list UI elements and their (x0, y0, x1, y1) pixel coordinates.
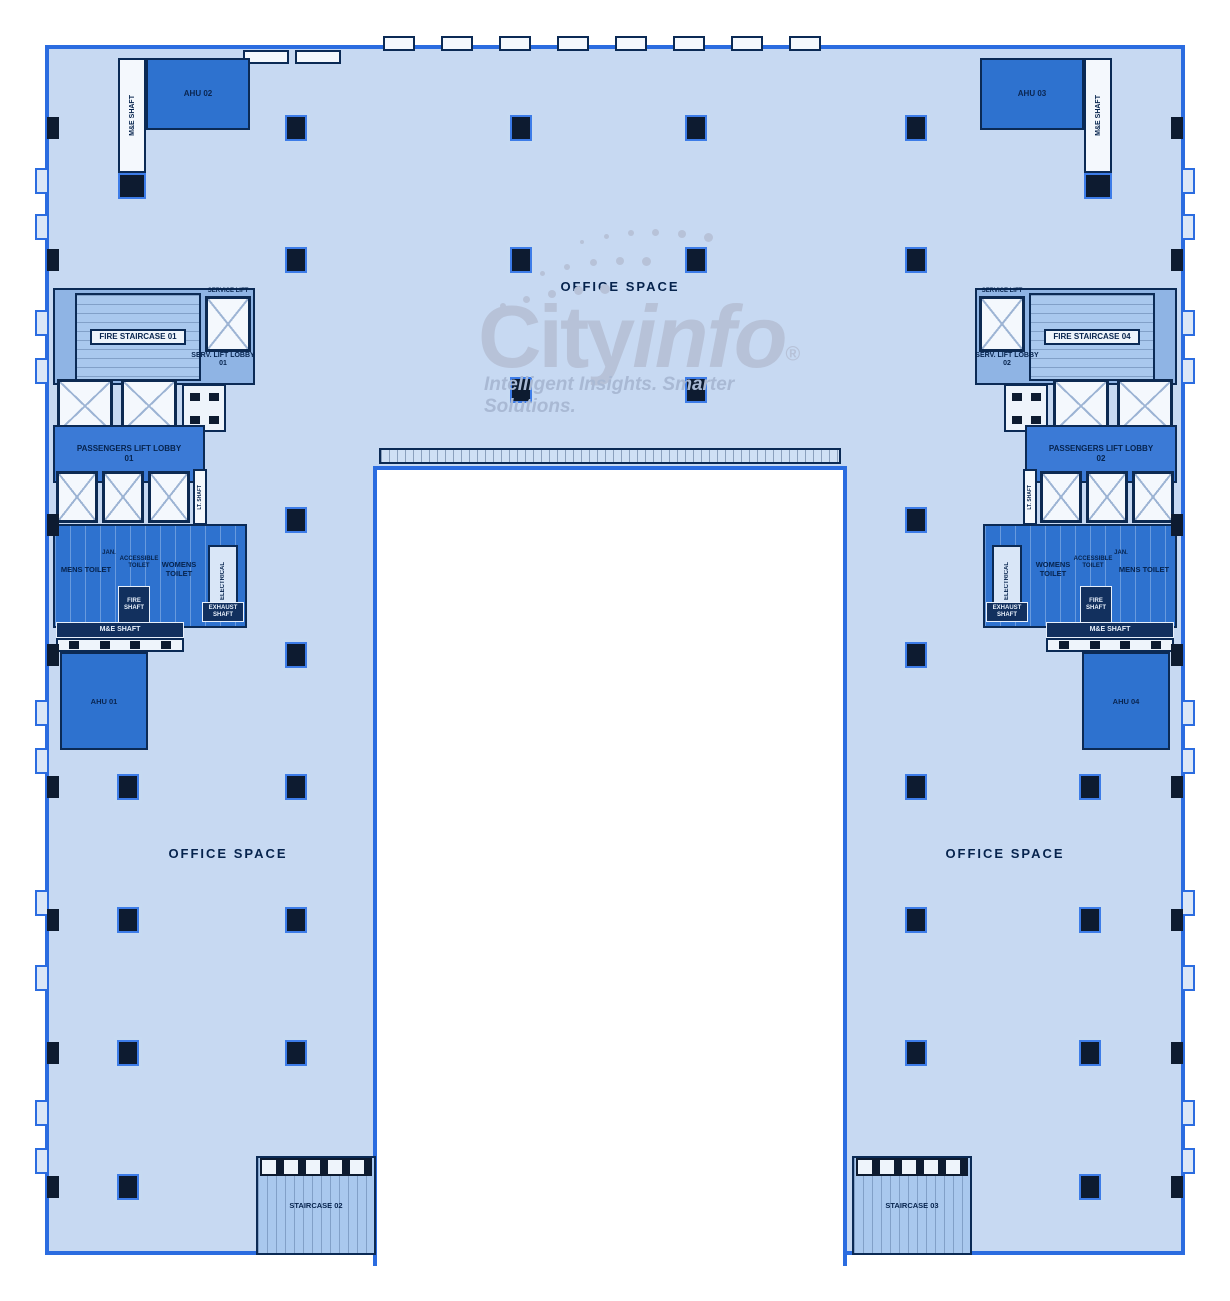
structural-column (1079, 1040, 1101, 1066)
shaft-box (118, 173, 146, 199)
wall-pilaster (47, 249, 59, 271)
staircase-02-landing (260, 1158, 372, 1176)
electrical-label: ELECTRICAL (220, 562, 226, 600)
passenger-lift-cell (102, 471, 144, 523)
structural-column (1079, 907, 1101, 933)
facade-notch (35, 214, 47, 240)
exhaust-shaft-right: EXHAUST SHAFT (986, 602, 1028, 622)
facade-notch (35, 965, 47, 991)
fire-shaft-label: FIRE SHAFT (121, 598, 147, 612)
structural-column (1079, 774, 1101, 800)
service-lift-right (979, 296, 1025, 352)
parapet-notch (789, 36, 821, 51)
electrical-label: ELECTRICAL (1004, 562, 1010, 600)
exhaust-shaft-label: EXHAUST SHAFT (205, 605, 241, 619)
me-shaft-label: M&E SHAFT (129, 95, 136, 136)
ahu-02-room: AHU 02 (146, 58, 250, 130)
structural-column (905, 115, 927, 141)
lt-shaft-label: LT. SHAFT (197, 485, 203, 510)
watermark-dot (580, 240, 584, 244)
wall-pilaster (1171, 644, 1183, 666)
wall-pilaster (1171, 249, 1183, 271)
facade-notch (35, 700, 47, 726)
structural-column (285, 247, 307, 273)
passengers-lift-lobby-02-label: PASSENGERS LIFT LOBBY 02 (1046, 444, 1156, 463)
watermark-dot (704, 233, 713, 242)
structural-column (117, 907, 139, 933)
facade-notch (1183, 214, 1195, 240)
structural-column (117, 774, 139, 800)
wall-pilaster (47, 644, 59, 666)
ahu-01-room: AHU 01 (60, 652, 148, 750)
me-shaft-top-right: M&E SHAFT (1084, 58, 1112, 173)
wall-pilaster (47, 1042, 59, 1064)
fire-staircase-01-label: FIRE STAIRCASE 01 (90, 329, 186, 344)
wall-pilaster (47, 1176, 59, 1198)
parapet-notch (499, 36, 531, 51)
me-shaft-left: M&E SHAFT (56, 622, 184, 638)
structural-column (285, 774, 307, 800)
janitor-right-label: JAN. (1108, 550, 1134, 557)
facade-notch (1183, 310, 1195, 336)
mens-toilet-left-label: MENS TOILET (60, 565, 112, 574)
structural-column (1079, 1174, 1101, 1200)
watermark-dot (548, 290, 556, 298)
parapet-notch (731, 36, 763, 51)
watermark-dot (616, 257, 624, 265)
lt-shaft-left: LT. SHAFT (193, 469, 207, 525)
ahu-01-label: AHU 01 (91, 697, 118, 706)
structural-column (510, 115, 532, 141)
exhaust-shaft-label: EXHAUST SHAFT (989, 605, 1025, 619)
service-lift-right-label: SERVICE LIFT (974, 288, 1030, 295)
wall-pilaster (1171, 909, 1183, 931)
facade-notch (35, 748, 47, 774)
wall-pilaster (47, 514, 59, 536)
structural-column (285, 907, 307, 933)
fire-shaft-left: FIRE SHAFT (118, 586, 150, 624)
facade-vent-box (295, 50, 341, 64)
me-shaft-right: M&E SHAFT (1046, 622, 1174, 638)
facade-notch (1183, 168, 1195, 194)
wall-pilaster (47, 776, 59, 798)
structural-column (905, 1040, 927, 1066)
facade-notch (1183, 1148, 1195, 1174)
fire-shaft-label: FIRE SHAFT (1083, 598, 1109, 612)
wall-pilaster (47, 909, 59, 931)
office-space-left-label: OFFICE SPACE (128, 846, 328, 862)
facade-notch (35, 1100, 47, 1126)
mens-toilet-right-label: MENS TOILET (1118, 565, 1170, 574)
watermark-dot (500, 303, 506, 309)
ahu-02-label: AHU 02 (184, 89, 212, 99)
parapet-notch (383, 36, 415, 51)
parapet-notch (673, 36, 705, 51)
me-shaft-sub-boxes (1046, 638, 1174, 652)
facade-notch (1183, 748, 1195, 774)
service-lift-left (205, 296, 251, 352)
watermark-dot (642, 257, 651, 266)
structural-column (285, 115, 307, 141)
me-shaft-label: M&E SHAFT (1095, 95, 1102, 136)
structural-column (905, 774, 927, 800)
parapet-notch (441, 36, 473, 51)
watermark-dot (523, 296, 530, 303)
structural-column (905, 907, 927, 933)
watermark-dot (600, 284, 610, 294)
facade-notch (35, 358, 47, 384)
structural-column (510, 247, 532, 273)
lt-shaft-right: LT. SHAFT (1023, 469, 1037, 525)
exhaust-shaft-left: EXHAUST SHAFT (202, 602, 244, 622)
wall-pilaster (1171, 776, 1183, 798)
me-shaft-top-left: M&E SHAFT (118, 58, 146, 173)
facade-notch (1183, 890, 1195, 916)
facade-notch (35, 168, 47, 194)
shaft-box (1084, 173, 1112, 199)
ahu-03-label: AHU 03 (1018, 89, 1046, 99)
parapet-notch (557, 36, 589, 51)
fire-staircase-04-room: FIRE STAIRCASE 04 (1029, 293, 1155, 381)
wall-pilaster (1171, 1176, 1183, 1198)
passenger-lift-cell (1086, 471, 1128, 523)
structural-column (117, 1040, 139, 1066)
watermark-dot (574, 286, 583, 295)
structural-column (905, 642, 927, 668)
watermark-dot (564, 264, 570, 270)
wall-pilaster (47, 117, 59, 139)
watermark-dot (678, 230, 686, 238)
facade-notch (35, 890, 47, 916)
passenger-lift-cell (1040, 471, 1082, 523)
facade-notch (35, 1148, 47, 1174)
me-shaft-label: M&E SHAFT (1090, 626, 1131, 634)
watermark-dot (540, 271, 545, 276)
serv-lift-lobby-02-label: SERV. LIFT LOBBY 02 (974, 352, 1040, 369)
watermark-dot (652, 229, 659, 236)
me-shaft-sub-boxes (56, 638, 184, 652)
womens-toilet-left-label: WOMENS TOILET (148, 560, 210, 578)
structural-column (905, 507, 927, 533)
facade-notch (1183, 700, 1195, 726)
passengers-lift-lobby-01-label: PASSENGERS LIFT LOBBY 01 (74, 444, 184, 463)
watermark-dot (604, 234, 609, 239)
staircase-03-landing (856, 1158, 968, 1176)
fire-staircase-04-label: FIRE STAIRCASE 04 (1044, 329, 1140, 344)
wall-pilaster (1171, 1042, 1183, 1064)
courtyard-top-wall (379, 448, 841, 464)
facade-notch (35, 310, 47, 336)
facade-notch (1183, 965, 1195, 991)
structural-column (285, 1040, 307, 1066)
accessible-toilet-right-label: ACCESSIBLE TOILET (1072, 556, 1114, 570)
me-shaft-label: M&E SHAFT (100, 626, 141, 634)
structural-column (117, 1174, 139, 1200)
fire-staircase-01-room: FIRE STAIRCASE 01 (75, 293, 201, 381)
service-lift-left-label: SERVICE LIFT (200, 288, 256, 295)
facade-notch (1183, 358, 1195, 384)
wall-pilaster (1171, 514, 1183, 536)
office-space-right-label: OFFICE SPACE (905, 846, 1105, 862)
staircase-02-label: STAIRCASE 02 (289, 1201, 342, 1210)
wall-pilaster (1171, 117, 1183, 139)
ahu-03-room: AHU 03 (980, 58, 1084, 130)
central-courtyard (373, 466, 847, 1266)
structural-column (685, 247, 707, 273)
floor-plan: M&E SHAFT AHU 02 AHU 03 M&E SHAFT FIRE S… (0, 0, 1230, 1301)
watermark-dot (590, 259, 597, 266)
passenger-lift-cell (56, 471, 98, 523)
ahu-04-room: AHU 04 (1082, 652, 1170, 750)
facade-notch (1183, 1100, 1195, 1126)
watermark-dot (628, 230, 634, 236)
structural-column (685, 115, 707, 141)
structural-column (285, 507, 307, 533)
parapet-notch (615, 36, 647, 51)
lt-shaft-label: LT. SHAFT (1027, 485, 1033, 510)
passenger-lift-cell (148, 471, 190, 523)
watermark-tagline: Intelligent Insights. Smarter Solutions. (484, 374, 784, 418)
structural-column (905, 247, 927, 273)
ahu-04-label: AHU 04 (1113, 697, 1140, 706)
passenger-lift-cell (1132, 471, 1174, 523)
serv-lift-lobby-01-label: SERV. LIFT LOBBY 01 (190, 352, 256, 369)
fire-shaft-right: FIRE SHAFT (1080, 586, 1112, 624)
staircase-03-label: STAIRCASE 03 (885, 1201, 938, 1210)
structural-column (285, 642, 307, 668)
